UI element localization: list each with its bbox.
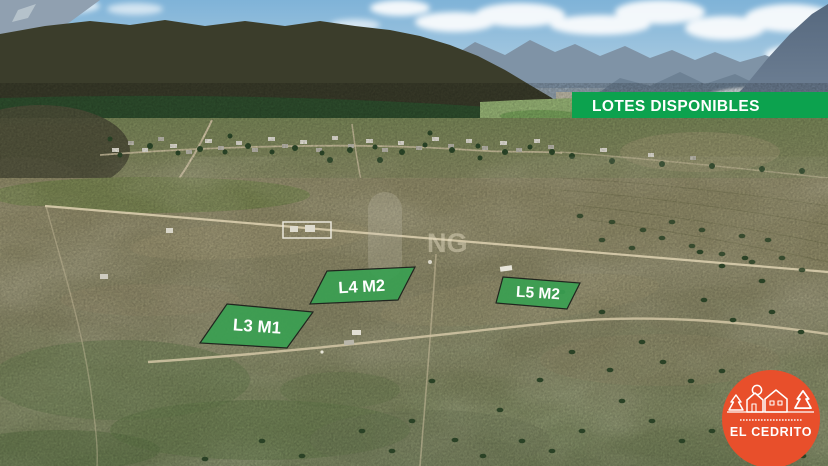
lot-marker-l5-m2: L5 M2 — [496, 277, 580, 309]
banner-label: LOTES DISPONIBLES — [592, 98, 760, 115]
lot-l5-m2-label: L5 M2 — [516, 284, 561, 304]
aerial-photo-lots-promo: NG L4 M2 L5 M2 L3 M1 LOTES DISPONIBLES — [0, 0, 828, 466]
lots-available-banner: LOTES DISPONIBLES — [572, 92, 828, 118]
el-cedrito-logo: EL CEDRITO — [722, 370, 820, 466]
scene: NG L4 M2 L5 M2 L3 M1 LOTES DISPONIBLES — [0, 0, 828, 466]
lot-marker-l4-m2: L4 M2 — [310, 267, 415, 304]
watermark-text: NG — [427, 228, 468, 258]
logo-title: EL CEDRITO — [730, 425, 812, 439]
lot-l3-m1-label: L3 M1 — [232, 315, 281, 337]
logo-badge — [722, 370, 820, 466]
photo-grain — [0, 118, 828, 466]
lot-l4-m2-label: L4 M2 — [338, 277, 386, 297]
